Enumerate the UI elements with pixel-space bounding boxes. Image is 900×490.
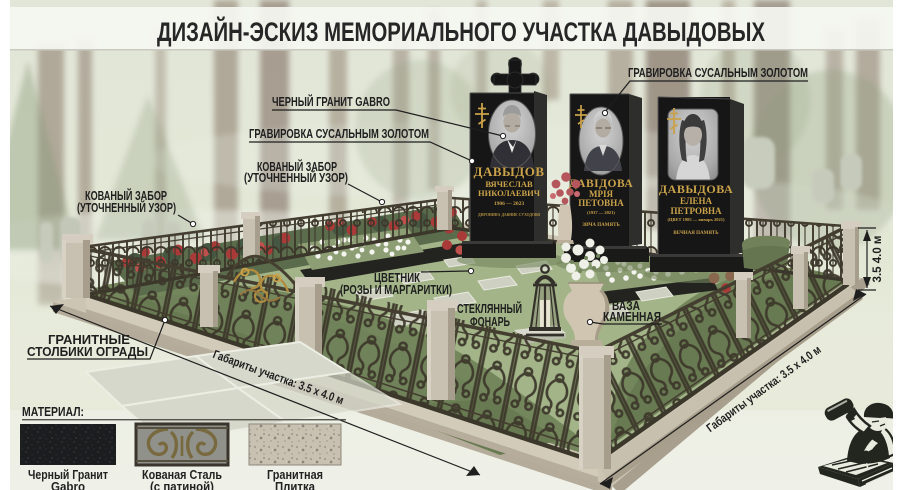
svg-text:ДИРОНИНА ДАВНИЕ СУХОДОВЯ: ДИРОНИНА ДАВНИЕ СУХОДОВЯ bbox=[478, 213, 540, 217]
svg-text:1906 — 2023: 1906 — 2023 bbox=[494, 201, 525, 207]
svg-text:(ЦВЕТ 1985 — январь 2021): (ЦВЕТ 1985 — январь 2021) bbox=[667, 217, 725, 222]
svg-text:(1937 — 2021): (1937 — 2021) bbox=[587, 210, 615, 215]
svg-text:ЗИЧА ПАМЯТЬ: ЗИЧА ПАМЯТЬ bbox=[582, 223, 620, 228]
svg-text:МАТЕРИАЛ:: МАТЕРИАЛ: bbox=[22, 404, 84, 419]
svg-text:ГРАВИРОВКА СУСАЛЬНЫМ ЗОЛОТОМ: ГРАВИРОВКА СУСАЛЬНЫМ ЗОЛОТОМ bbox=[249, 126, 429, 141]
svg-text:НИКОЛАЕВИЧ: НИКОЛАЕВИЧ bbox=[478, 188, 541, 198]
svg-text:ЧЕРНЫЙ ГРАНИТ GABRO: ЧЕРНЫЙ ГРАНИТ GABRO bbox=[272, 94, 390, 109]
svg-text:(с патиной): (с патиной) bbox=[150, 480, 214, 490]
svg-text:(РОЗЫ И МАРГАРИТКИ): (РОЗЫ И МАРГАРИТКИ) bbox=[340, 282, 452, 297]
svg-text:ДАВЫДОВ: ДАВЫДОВ bbox=[474, 164, 545, 179]
svg-text:3.5 4.0 м: 3.5 4.0 м bbox=[872, 236, 884, 283]
svg-text:Плитка: Плитка bbox=[275, 480, 316, 490]
svg-text:ПЕТРОВНА: ПЕТРОВНА bbox=[671, 206, 722, 216]
svg-text:ВЕЧНАЯ ПАМЯТЬ: ВЕЧНАЯ ПАМЯТЬ bbox=[673, 231, 719, 236]
svg-text:Gabro: Gabro bbox=[51, 480, 85, 490]
svg-text:ЕЛЕНА: ЕЛЕНА bbox=[680, 196, 713, 206]
svg-text:(УТОЧНЕННЫЙ УЗОР): (УТОЧНЕННЫЙ УЗОР) bbox=[77, 200, 176, 215]
svg-text:(УТОЧНЕННЫЙ УЗОР): (УТОЧНЕННЫЙ УЗОР) bbox=[244, 170, 348, 185]
svg-text:ГРАВИРОВКА СУСАЛЬНЫМ ЗОЛОТОМ: ГРАВИРОВКА СУСАЛЬНЫМ ЗОЛОТОМ bbox=[628, 65, 808, 80]
svg-text:СТОЛБИКИ ОГРАДЫ: СТОЛБИКИ ОГРАДЫ bbox=[27, 344, 148, 359]
svg-text:ФОНАРЬ: ФОНАРЬ bbox=[470, 314, 510, 329]
svg-text:ПЕТОВНА: ПЕТОВНА bbox=[578, 198, 624, 208]
svg-text:ДАВЫДОВА: ДАВЫДОВА bbox=[659, 182, 733, 196]
svg-text:ДИЗАЙН-ЭСКИЗ МЕМОРИАЛЬНОГО УЧА: ДИЗАЙН-ЭСКИЗ МЕМОРИАЛЬНОГО УЧАСТКА ДАВЫД… bbox=[157, 16, 765, 47]
svg-text:КАМЕННАЯ: КАМЕННАЯ bbox=[603, 309, 661, 324]
